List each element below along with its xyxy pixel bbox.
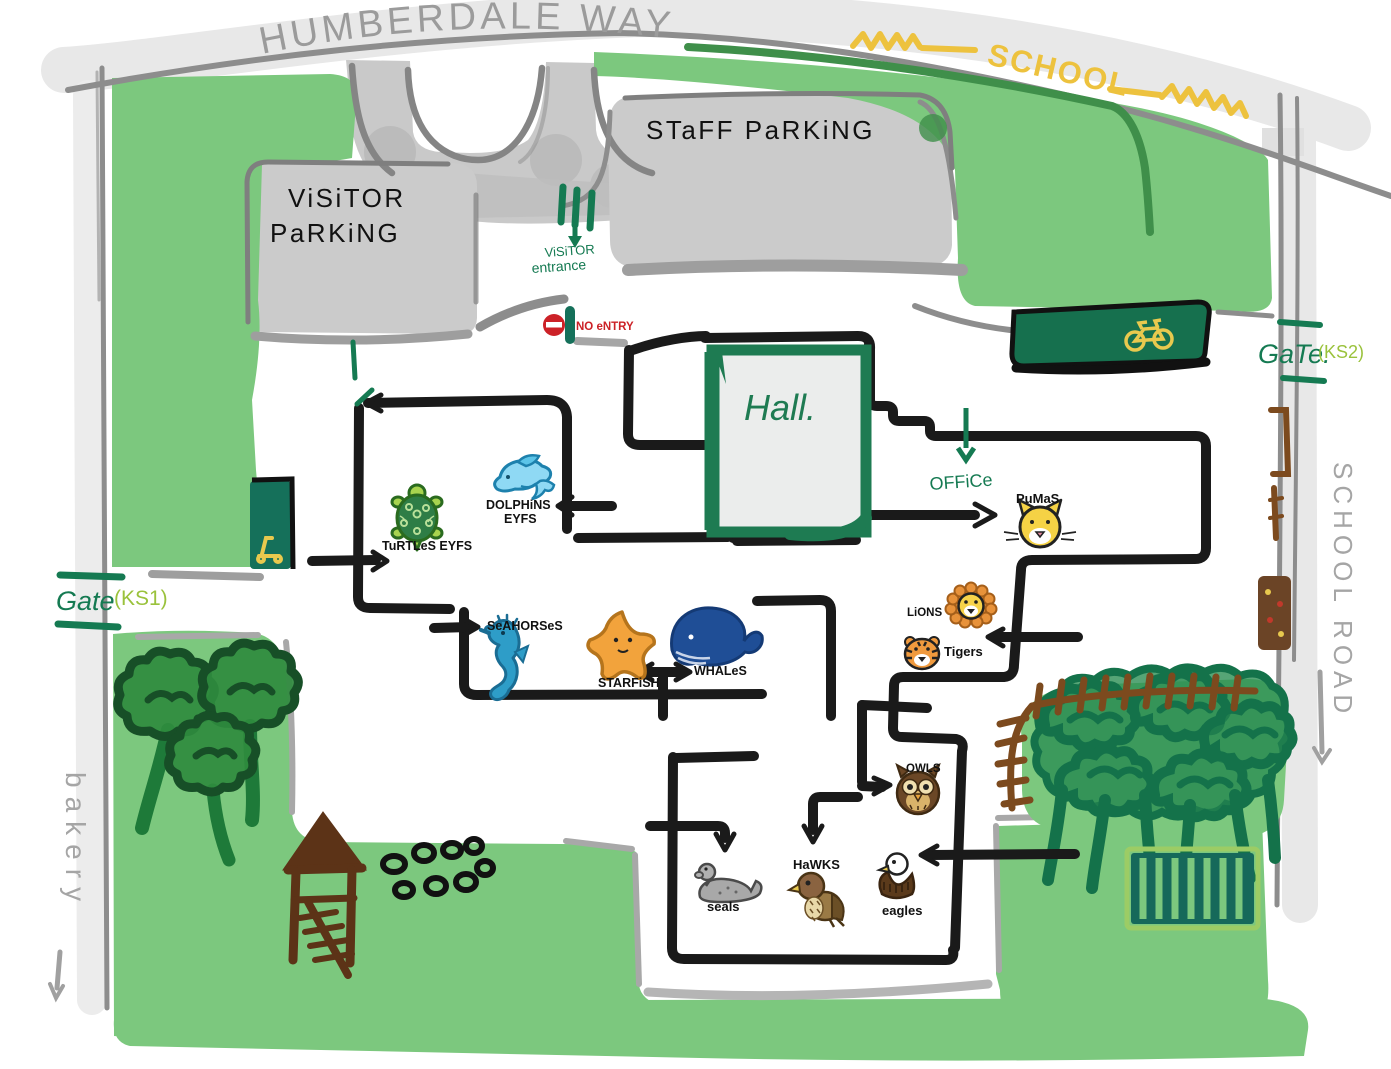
- svg-text:NO eNTRY: NO eNTRY: [576, 321, 634, 333]
- svg-text:SeAHORSeS: SeAHORSeS: [487, 619, 563, 633]
- svg-text:Gate: Gate: [56, 586, 115, 616]
- svg-text:LiONS: LiONS: [907, 607, 942, 619]
- svg-text:seals: seals: [707, 899, 740, 914]
- svg-text:SCHOOL ROAD: SCHOOL ROAD: [1328, 462, 1358, 719]
- svg-text:(KS1): (KS1): [114, 587, 168, 610]
- svg-text:ViSiTOR: ViSiTOR: [288, 183, 406, 213]
- svg-text:PaRKiNG: PaRKiNG: [270, 218, 400, 248]
- svg-text:STARFiSH: STARFiSH: [598, 676, 660, 690]
- svg-text:HaWKS: HaWKS: [793, 857, 840, 872]
- svg-text:Tigers: Tigers: [944, 644, 983, 659]
- svg-text:TuRTLeS EYFS: TuRTLeS EYFS: [382, 539, 472, 553]
- svg-text:DOLPHiNS: DOLPHiNS: [486, 498, 551, 512]
- svg-text:Hall.: Hall.: [744, 387, 816, 428]
- svg-text:bakery: bakery: [60, 772, 91, 910]
- svg-text:eagles: eagles: [882, 903, 922, 918]
- svg-text:(KS2): (KS2): [1318, 342, 1364, 362]
- svg-text:STaFF PaRKiNG: STaFF PaRKiNG: [646, 115, 875, 145]
- svg-text:WHALeS: WHALeS: [694, 664, 747, 678]
- svg-text:EYFS: EYFS: [504, 512, 537, 526]
- svg-text:OWLS: OWLS: [906, 763, 941, 775]
- svg-text:PuMaS: PuMaS: [1016, 491, 1060, 506]
